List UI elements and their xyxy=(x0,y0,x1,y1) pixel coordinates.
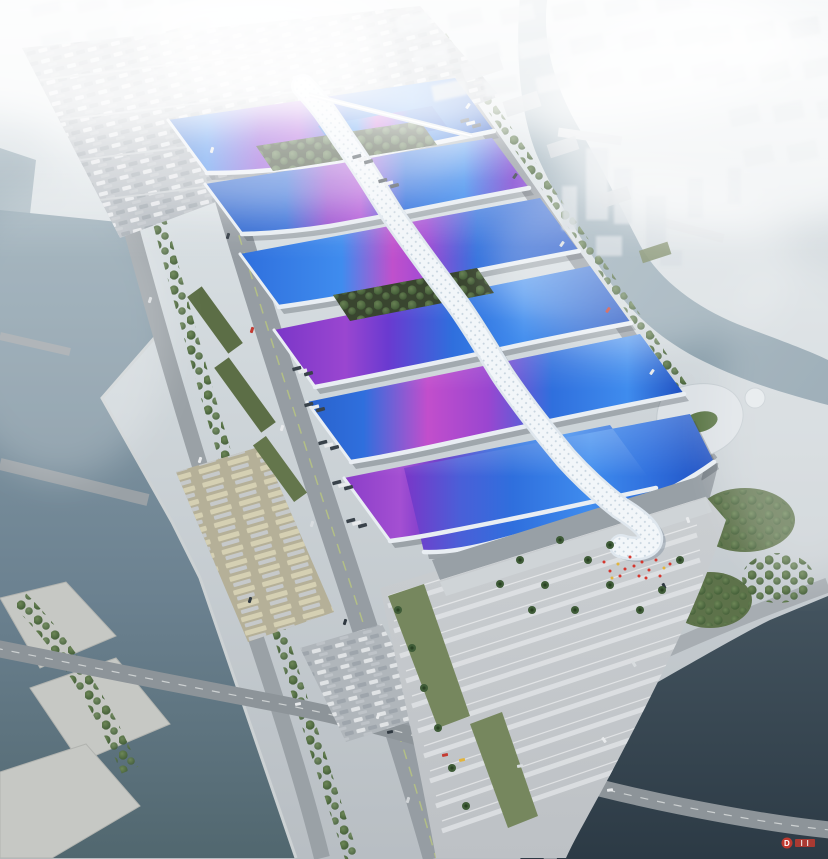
aerial-render-image: D xyxy=(0,0,828,859)
watermark-text-block xyxy=(795,839,815,847)
watermark-letter: D xyxy=(784,839,790,848)
watermark-logo: D xyxy=(782,838,816,849)
